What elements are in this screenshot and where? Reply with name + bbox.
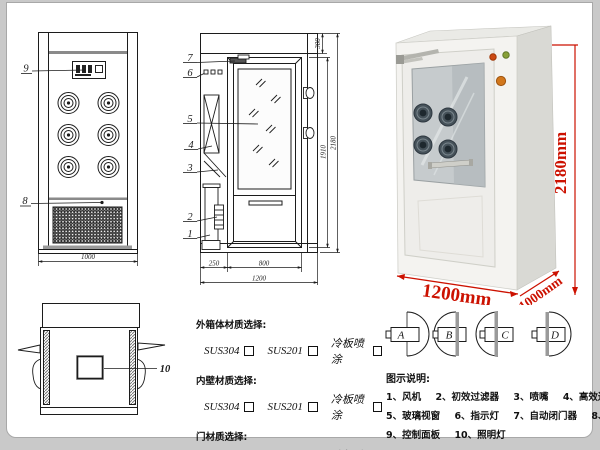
legend-item: 1、风机 (386, 392, 421, 403)
materials-group-title: 内壁材质选择: (196, 373, 382, 387)
material-checkbox[interactable] (308, 346, 318, 356)
door-type-b: B (433, 312, 466, 356)
indicator-light-green (503, 52, 509, 58)
material-checkbox[interactable] (373, 346, 382, 356)
callout-hepa: 4 (188, 140, 194, 151)
legend-item: 5、玻璃视窗 (386, 411, 440, 422)
door-type-label: B (446, 330, 453, 342)
legend-item: 6、指示灯 (454, 411, 499, 422)
legend-item: 3、喷嘴 (513, 392, 548, 403)
material-checkbox[interactable] (308, 402, 318, 412)
legend-item: 2、初效过滤器 (435, 392, 499, 403)
callout-door-closer: 7 (187, 53, 193, 64)
side-dim-total-height: 2180 (330, 136, 338, 151)
air-return-grille (53, 207, 122, 243)
callout-grille: 8 (22, 196, 28, 207)
legend-item: 10、照明灯 (454, 430, 505, 441)
legend-row: 1、风机 2、初效过滤器 3、喷嘴 4、高效过滤器 (386, 389, 594, 403)
material-option-label: SUS201 (267, 401, 302, 413)
product-photo: 2180mm 1200mm 1000mm (372, 5, 597, 305)
side-dim-left: 250 (209, 260, 220, 268)
legend-title: 图示说明: (386, 370, 594, 385)
cabinet-3d (396, 26, 556, 290)
door-type-c: C (476, 312, 513, 356)
indicator-light-red (490, 54, 496, 60)
callout-glass: 5 (187, 114, 192, 125)
materials-options-row: SUS304 SUS201 冷板喷涂 (204, 391, 382, 423)
material-checkbox[interactable] (244, 346, 254, 356)
front-view-drawing: 9 8 1000 (15, 25, 165, 275)
legend-item: 9、控制面板 (386, 430, 440, 441)
door-type-d: D (532, 312, 571, 356)
top-view-drawing: 10 (15, 295, 195, 425)
front-dim-width: 1000 (81, 253, 96, 261)
legend-row: 5、玻璃视窗 6、指示灯 7、自动闭门器 8、红外线感应器 (386, 408, 594, 422)
callout-fan: 1 (187, 229, 192, 240)
callout-prefilter: 2 (187, 212, 193, 223)
side-view-drawing: 7 6 5 4 3 2 1 300 1910 2180 (170, 15, 355, 290)
materials-form: 外箱体材质选择: SUS304 SUS201 冷板喷涂 内壁材质选择: SUS3… (196, 314, 382, 450)
door-type-label: C (501, 330, 509, 342)
front-top-band (49, 51, 127, 54)
material-option-label: 冷板喷涂 (331, 335, 368, 367)
material-checkbox[interactable] (244, 402, 254, 412)
side-dim-door: 800 (259, 260, 270, 268)
material-option-label: SUS304 (204, 345, 239, 357)
material-option-label: SUS201 (267, 345, 302, 357)
legend-item: 4、高效过滤器 (563, 392, 600, 403)
material-option-label: 冷板喷涂 (331, 391, 368, 423)
legend-block: 图示说明: 1、风机 2、初效过滤器 3、喷嘴 4、高效过滤器 5、玻璃视窗 6… (386, 370, 594, 446)
callout-lamp: 10 (160, 364, 171, 375)
push-button-orange[interactable] (496, 76, 505, 85)
door-type-label: A (397, 330, 405, 342)
front-bottom-band (43, 246, 132, 250)
front-mid-band (49, 198, 127, 201)
material-option-label: SUS304 (204, 401, 239, 413)
legend-row: 9、控制面板 10、照明灯 (386, 427, 594, 441)
side-dim-top: 300 (314, 38, 322, 50)
door-type-icons: A B C D (385, 303, 580, 365)
side-dim-inner-height: 1910 (320, 145, 328, 160)
materials-group-title: 外箱体材质选择: (196, 317, 382, 331)
materials-options-row: SUS304 SUS201 冷板喷涂 (204, 335, 382, 367)
materials-group-title: 门材质选择: (196, 429, 382, 443)
door-type-label: D (550, 330, 559, 342)
ceiling-lamp (76, 355, 104, 380)
material-checkbox[interactable] (373, 402, 382, 412)
callout-indicator: 6 (187, 68, 193, 79)
legend-item: 8、红外线感应器 (591, 411, 600, 422)
callout-nozzle: 3 (186, 163, 192, 174)
callout-control-panel: 9 (23, 64, 29, 75)
photo-height-label: 2180mm (551, 132, 570, 194)
door-type-a: A (386, 312, 429, 356)
legend-item: 7、自动闭门器 (513, 411, 577, 422)
spec-sheet: 9 8 1000 (0, 0, 600, 450)
indicator-lights-side (204, 70, 222, 74)
side-dim-total-width: 1200 (252, 275, 267, 283)
